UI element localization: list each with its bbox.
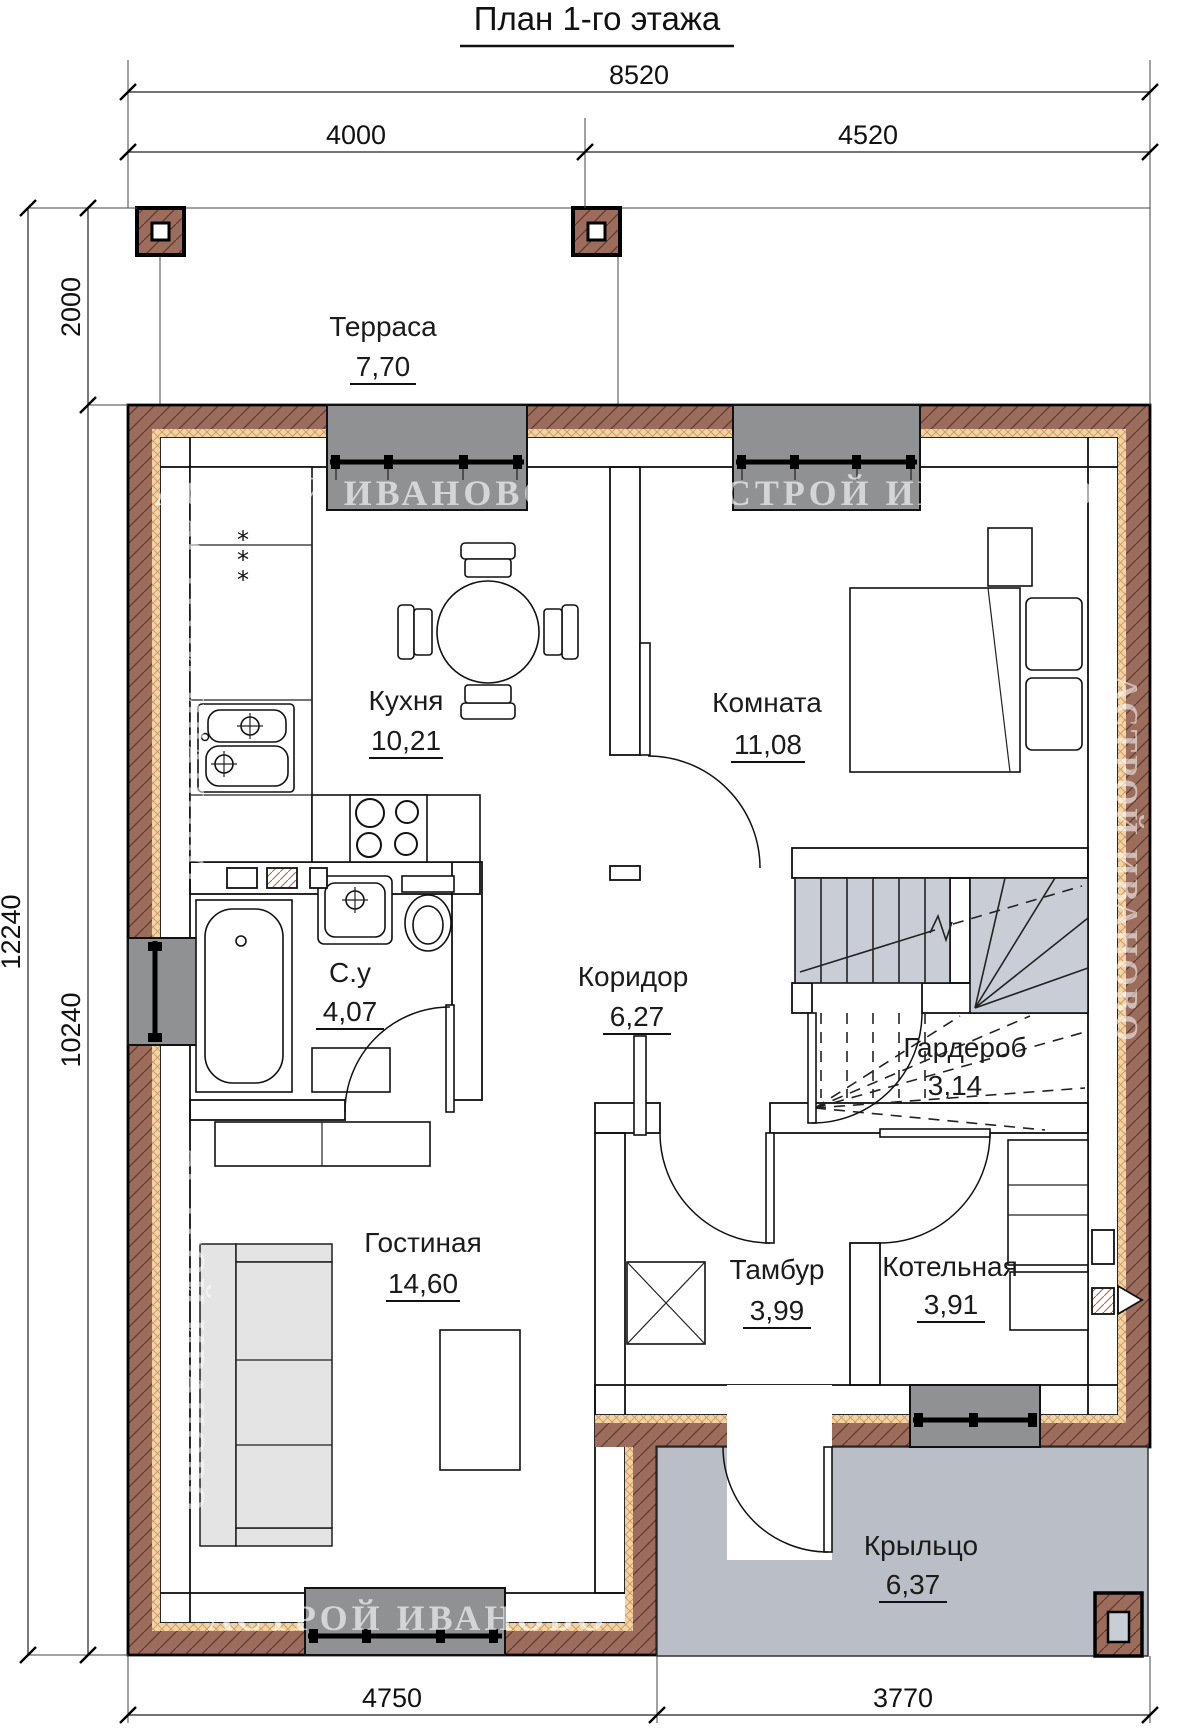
door-swing-area <box>727 1447 832 1560</box>
svg-text:14,60: 14,60 <box>388 1268 458 1299</box>
watermark-text: АСТРОЙ ИВАНОВО <box>155 473 556 513</box>
watermark-text: АСТРОЙ ИВАНОВО <box>208 1598 609 1638</box>
boiler-equipment-icon <box>1008 1140 1088 1330</box>
bathtub-icon <box>196 900 292 1092</box>
dim-house-height: 10240 <box>56 992 86 1067</box>
window-bathroom <box>128 938 200 1045</box>
svg-text:4,07: 4,07 <box>323 996 378 1027</box>
svg-text:Комната: Комната <box>712 687 822 718</box>
stove-icon <box>350 795 427 862</box>
dim-overall-width: 8520 <box>609 60 669 90</box>
watermark-text: АСТРОЙ ИВАНОВО <box>174 1146 211 1514</box>
corridor-cabinet <box>634 1036 646 1135</box>
watermark-text: АСТРОЙ ИВАНОВО <box>697 473 1098 513</box>
svg-text:Кухня: Кухня <box>369 685 444 716</box>
watermark-text: АСТРОЙ ИВАНОВО <box>1107 676 1144 1044</box>
kitchen-sink-icon <box>198 704 294 792</box>
svg-text:3,91: 3,91 <box>924 1289 979 1320</box>
svg-text:Гостиная: Гостиная <box>364 1227 482 1258</box>
dim-overall-height: 12240 <box>0 894 26 969</box>
floor-plan-drawing: * * * <box>0 0 1193 1729</box>
entrance-opening <box>727 1385 832 1447</box>
coffee-table-icon <box>440 1330 520 1470</box>
page-title: План 1-го этажа <box>474 0 721 37</box>
porch-column-icon <box>1095 1593 1142 1656</box>
svg-text:3,99: 3,99 <box>750 1295 805 1326</box>
svg-text:Гардероб: Гардероб <box>903 1032 1026 1063</box>
terrace-column-icon <box>137 208 184 255</box>
watermark-text: АСТРОЙ ИВАНОВО <box>174 516 211 884</box>
floor-plan-page: * * * <box>0 0 1193 1729</box>
svg-text:6,37: 6,37 <box>886 1569 941 1600</box>
sideboard-icon <box>215 1122 430 1166</box>
svg-text:Терраса: Терраса <box>329 311 437 342</box>
svg-text:Коридор: Коридор <box>578 961 689 992</box>
svg-text:10,21: 10,21 <box>371 725 441 756</box>
bed-icon <box>850 588 1082 772</box>
svg-text:7,70: 7,70 <box>356 351 411 382</box>
svg-text:Крыльцо: Крыльцо <box>864 1530 978 1561</box>
partition-vent-icons <box>227 868 327 888</box>
svg-text:Котельная: Котельная <box>882 1251 1018 1282</box>
toilet-icon <box>402 876 454 951</box>
terrace-column-icon <box>573 208 620 255</box>
svg-text:6,27: 6,27 <box>610 1001 665 1032</box>
dim-terrace-depth: 2000 <box>56 277 86 337</box>
duct-shaft-icon <box>627 1262 705 1344</box>
svg-text:3,14: 3,14 <box>928 1070 983 1101</box>
svg-text:11,08: 11,08 <box>734 729 802 760</box>
dim-bottom-left: 4750 <box>362 1683 422 1713</box>
dim-bottom-right: 3770 <box>873 1683 933 1713</box>
washbasin-icon <box>318 876 392 944</box>
svg-text:С.у: С.у <box>329 957 371 988</box>
sofa-icon <box>200 1244 332 1546</box>
nightstand-icon <box>988 528 1032 586</box>
vent-symbol: * <box>237 566 249 594</box>
svg-text:Тамбур: Тамбур <box>729 1254 824 1285</box>
bath-cabinet <box>312 1048 390 1092</box>
window-boiler <box>910 1385 1040 1447</box>
dim-width-right: 4520 <box>838 120 898 150</box>
dim-width-left: 4000 <box>326 120 386 150</box>
